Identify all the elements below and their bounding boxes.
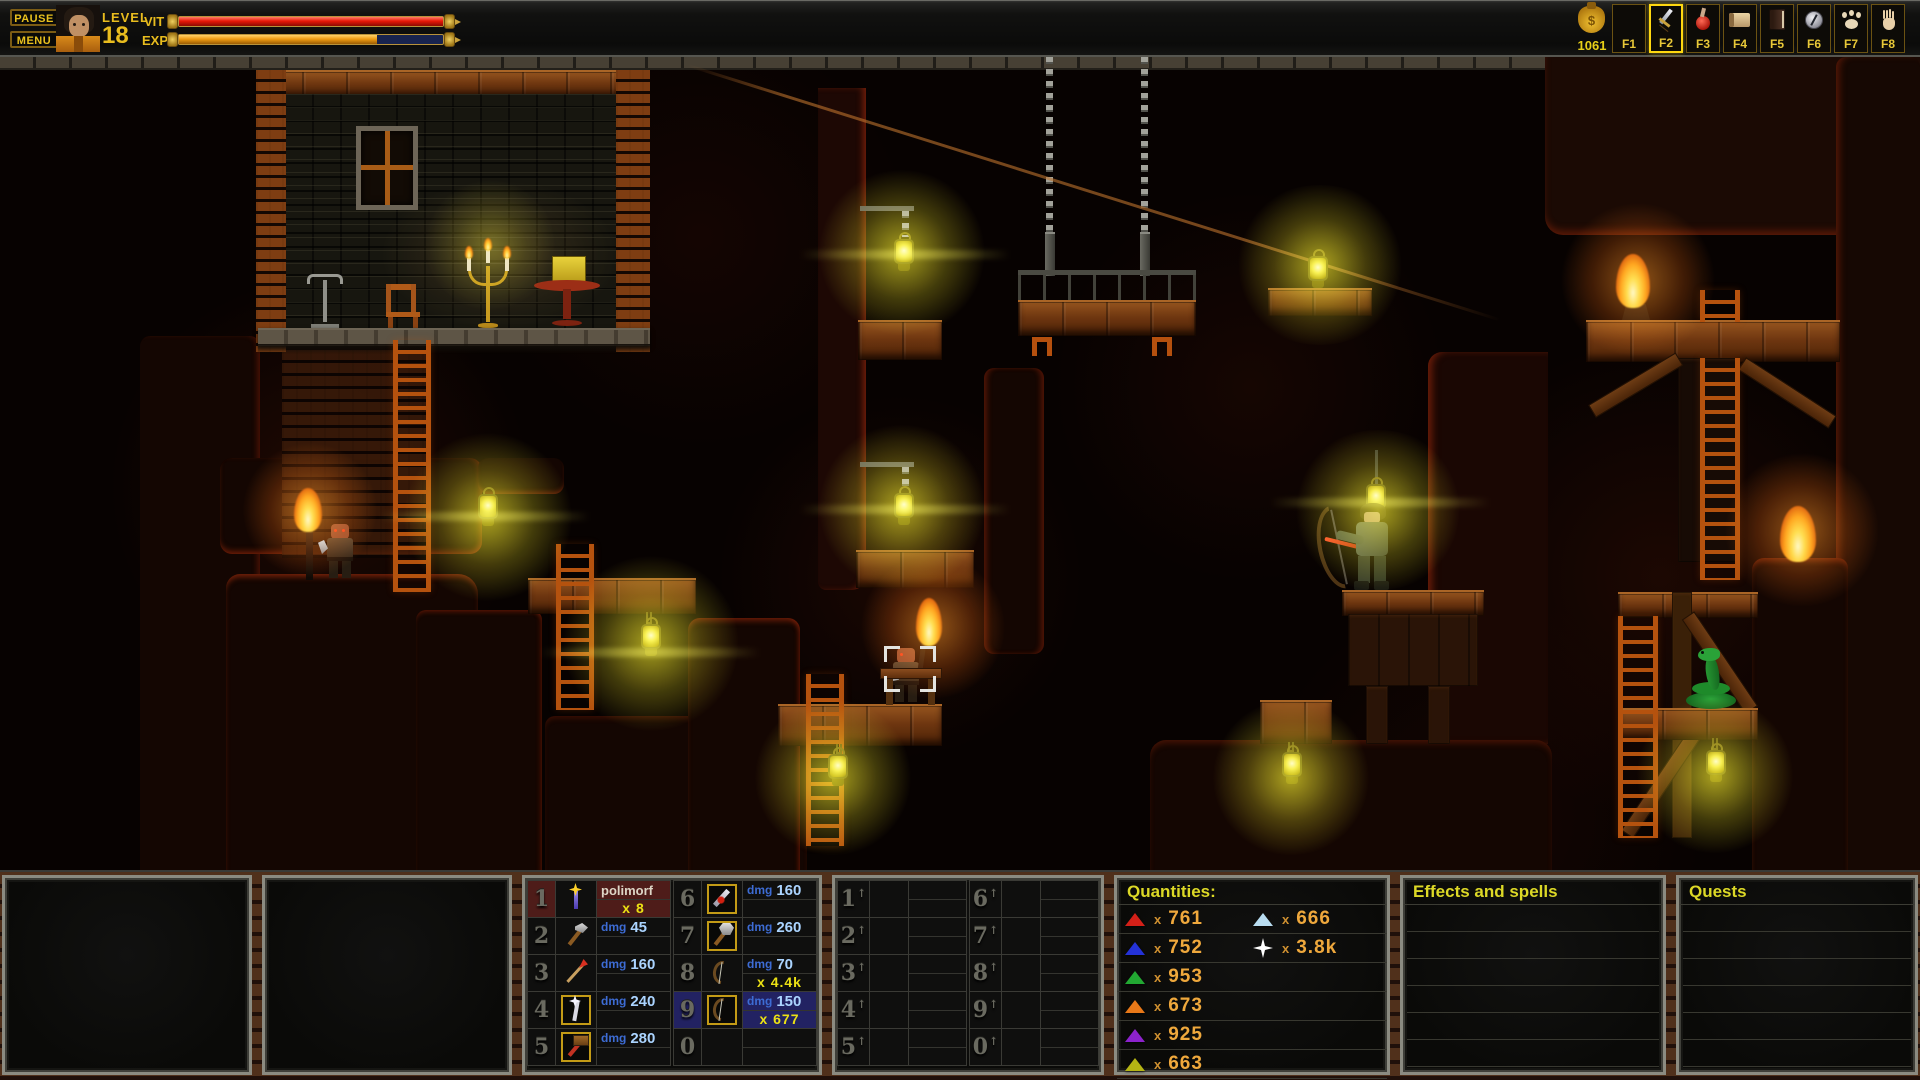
wood-platform: [528, 578, 696, 614]
lantern: [1282, 752, 1302, 784]
scene-decor: [1286, 777, 1298, 784]
slot-values: [1041, 881, 1098, 917]
quantity-row: x752x3.8k: [1117, 934, 1387, 963]
scene-decor: [342, 561, 351, 578]
compass-icon: [1801, 7, 1827, 33]
chair: [386, 284, 420, 328]
damage-label: dmg: [601, 920, 626, 934]
scene-decor: x3.8k: [1253, 937, 1381, 959]
fkey-label: F6: [1798, 37, 1830, 51]
slot-icon-cell: [702, 881, 743, 917]
multiplier-label: x: [1282, 941, 1289, 956]
dagger-icon: [709, 886, 735, 912]
shift-hotbar-slot-9[interactable]: 9↑: [970, 992, 1098, 1028]
ammo-count: x 677: [759, 1011, 799, 1027]
slot-values: dmg260: [743, 918, 816, 954]
scene-decor: [743, 1029, 816, 1048]
hotbar-slot-3[interactable]: 3dmg160: [528, 955, 670, 991]
slot-key: 7↑: [970, 918, 1002, 954]
scene-decor: [307, 274, 343, 284]
fkey-slot-f8[interactable]: F8: [1871, 4, 1905, 53]
scene-decor: [503, 246, 511, 259]
hotbar-slot-2[interactable]: 2dmg45: [528, 918, 670, 954]
quests-panel: Quests: [1676, 875, 1918, 1075]
scene-decor: [597, 1048, 670, 1064]
slot-values: dmg160: [597, 955, 670, 991]
slot-key: 0↑: [970, 1029, 1002, 1065]
ladder: [393, 340, 431, 592]
scene-decor: [1282, 752, 1302, 777]
pause-button[interactable]: PAUSE: [10, 9, 58, 26]
scene-decor: [1348, 614, 1478, 686]
scene-decor: [920, 676, 936, 692]
ammo-count: x 4.4k: [757, 974, 802, 990]
slot-key: 9↑: [970, 992, 1002, 1028]
weapons-hotbar-panel: 1polimorfx 82dmg453dmg1604dmg2405dmg2806…: [522, 875, 822, 1075]
slot-values: dmg150x 677: [743, 992, 816, 1028]
fkey-label: F1: [1613, 37, 1645, 51]
fkey-label: F4: [1724, 37, 1756, 51]
building-pillar: [616, 70, 650, 352]
bottom-hud-bar: 1polimorfx 82dmg453dmg1604dmg2405dmg2806…: [0, 870, 1920, 1080]
shift-hotbar-slot-7[interactable]: 7↑: [970, 918, 1098, 954]
effects-title: Effects and spells: [1403, 878, 1663, 905]
shift-key-digit: 6: [973, 886, 988, 912]
scene-decor: dmg160: [743, 881, 816, 900]
scene-decor: [465, 246, 473, 259]
scene-decor: x 8: [597, 900, 670, 916]
scene-decor: [597, 1011, 670, 1027]
slot-icon-cell: [702, 955, 743, 991]
hand-icon: [1875, 7, 1901, 33]
multiplier-label: x: [1154, 912, 1161, 927]
wood-platform: [856, 550, 974, 588]
slot-key: 9: [674, 992, 702, 1028]
scene-decor: [1032, 337, 1052, 356]
scene-decor: [1041, 900, 1098, 916]
scene-decor: 6dmg1607dmg2608dmg70x 4.4k9dmg150x 6770: [674, 881, 816, 1066]
cave-rock: [1752, 558, 1848, 880]
scene-decor: [909, 1011, 966, 1027]
quantity-row: x663: [1117, 1050, 1387, 1079]
damage-label: dmg: [747, 920, 772, 934]
hotbar-slot-5[interactable]: 5dmg280: [528, 1029, 670, 1065]
shift-key-digit: 4: [841, 997, 856, 1023]
hotbar-slot-6[interactable]: 6dmg160: [674, 881, 816, 917]
damage-label: dmg: [601, 1031, 626, 1045]
equipped-frame: [561, 995, 591, 1025]
shift-key-digit: 1: [841, 886, 856, 912]
scene-decor: [1041, 1011, 1098, 1027]
cave-rock: [688, 618, 800, 880]
scene-decor: [828, 754, 848, 779]
spear-icon: [563, 960, 589, 986]
book-icon: [1764, 7, 1790, 33]
fkey-slot-f5[interactable]: F5: [1760, 4, 1794, 53]
slot-values: [1041, 992, 1098, 1028]
lantern: [1706, 750, 1726, 782]
equipped-frame: [707, 884, 737, 914]
scene-decor: [743, 937, 816, 953]
scene-decor: [1374, 581, 1389, 590]
scene-decor: [467, 258, 471, 271]
arrow-pile-icon: [1125, 1000, 1145, 1013]
vitality-fill: [179, 17, 443, 26]
shift-marker: ↑: [857, 998, 866, 1011]
scene-decor: [505, 258, 509, 271]
slot-icon-cell: [702, 992, 743, 1028]
slot-values: dmg240: [597, 992, 670, 1028]
building-pillar: [256, 70, 286, 352]
scene-decor: [540, 648, 760, 657]
shift-hotbar-slot-0[interactable]: 0↑: [970, 1029, 1098, 1065]
multiplier-label: x: [1154, 941, 1161, 956]
slot-values: [909, 992, 966, 1028]
scene-decor: 1↑2↑3↑4↑5↑6↑7↑8↑9↑0↑: [835, 878, 1101, 1069]
arrow-pile-icon: [1125, 971, 1145, 984]
shift-marker: ↑: [989, 924, 998, 937]
effects-panel: Effects and spells: [1400, 875, 1666, 1075]
wood-platform: [778, 704, 942, 746]
lantern: [1308, 256, 1328, 288]
shift-key-digit: 7: [973, 923, 988, 949]
scene-decor: [909, 974, 966, 990]
equipped-frame: [561, 1032, 591, 1062]
scene-decor: [258, 344, 650, 354]
scene-decor: [909, 918, 966, 937]
shift-hotbar-slot-4[interactable]: 4↑: [838, 992, 966, 1028]
top-hud-bar: PAUSE MENU LEVEL 18 VIT EXP $ 1061 F1F2F…: [0, 0, 1920, 57]
scene-decor: 6↑7↑8↑9↑0↑: [970, 881, 1098, 1066]
scene-decor: [334, 529, 337, 532]
shift-hotbar-slot-1[interactable]: 1↑: [838, 881, 966, 917]
scene-decor: [484, 238, 492, 251]
damage-value: 240: [630, 993, 655, 1010]
quantity-count: 953: [1168, 966, 1203, 988]
arrow-pile-icon: [1253, 913, 1273, 926]
slot-key: 3: [528, 955, 556, 991]
platform-chain: [1046, 57, 1053, 234]
shift-hotbar-slot-8[interactable]: 8↑: [970, 955, 1098, 991]
scene-decor: [444, 14, 455, 29]
shift-marker: ↑: [857, 1035, 866, 1048]
fkey-slot-f6[interactable]: F6: [1797, 4, 1831, 53]
fkey-label: F5: [1761, 37, 1793, 51]
hotbar-slot-8[interactable]: 8dmg70x 4.4k: [674, 955, 816, 991]
inventory-panel-right: [262, 875, 512, 1075]
fkey-label: F8: [1872, 37, 1904, 51]
slot-values: dmg280: [597, 1029, 670, 1065]
scene-decor: [1308, 256, 1328, 281]
slot-key: 5: [528, 1029, 556, 1065]
shift-marker: ↑: [989, 998, 998, 1011]
shift-key-digit: 9: [973, 997, 988, 1023]
slot-values: dmg160: [743, 881, 816, 917]
scene-decor: [1041, 1029, 1098, 1048]
scene-decor: [329, 561, 338, 578]
shift-marker: ↑: [989, 1035, 998, 1048]
hanging-platform-deck: [1018, 300, 1196, 336]
wood-platform: [858, 320, 942, 360]
hotbar-slot-0[interactable]: 0: [674, 1029, 816, 1065]
scene-decor: [1041, 992, 1098, 1011]
shift-marker: ↑: [857, 961, 866, 974]
scene-decor: 1polimorfx 82dmg453dmg1604dmg2405dmg280: [528, 881, 670, 1066]
slot-key: 7: [674, 918, 702, 954]
slot-values: polimorfx 8: [597, 881, 670, 917]
scene-decor: dmg45: [597, 918, 670, 937]
slot-values: dmg45: [597, 918, 670, 954]
hotbar-slot-7[interactable]: 7dmg260: [674, 918, 816, 954]
slot-icon-cell: [870, 955, 909, 991]
slot-icon-cell: [702, 1029, 743, 1065]
shift-marker: ↑: [857, 887, 866, 900]
shift-hotbar-slot-5[interactable]: 5↑: [838, 1029, 966, 1065]
slot-icon-cell: [1002, 1029, 1041, 1065]
slot-icon-cell: [1002, 881, 1041, 917]
scene-decor: [1041, 974, 1098, 990]
slot-values: dmg70x 4.4k: [743, 955, 816, 991]
scene-decor: [1706, 750, 1726, 775]
damage-label: dmg: [601, 994, 626, 1008]
arrow-pile-icon: [1125, 1058, 1145, 1071]
scene-decor: [884, 676, 900, 692]
scene-decor: dmg160: [597, 955, 670, 974]
equipped-frame: [707, 995, 737, 1025]
slot-icon-cell: [556, 955, 597, 991]
scene-decor: [1354, 581, 1369, 590]
ladder: [556, 544, 594, 710]
arrow-pile-icon: [1125, 913, 1145, 926]
scene-decor: polimorf: [597, 881, 670, 900]
slot-icon-cell: [870, 881, 909, 917]
slot-key: 6↑: [970, 881, 1002, 917]
scene-decor: [327, 538, 353, 559]
scene-decor: dmg150: [743, 992, 816, 1011]
multiplier-label: x: [1154, 999, 1161, 1014]
shift-key-digit: 3: [841, 960, 856, 986]
slot-values: [743, 1029, 816, 1065]
fkey-slot-f1[interactable]: F1: [1612, 4, 1646, 53]
slot-icon-cell: [1002, 918, 1041, 954]
damage-value: 45: [630, 919, 647, 936]
scene-decor: [597, 974, 670, 990]
bow-icon: [709, 960, 735, 986]
multiplier-label: x: [1154, 1028, 1161, 1043]
slot-values: [1041, 955, 1098, 991]
candelabra: [466, 236, 510, 328]
scene-decor: [909, 1029, 966, 1048]
shift-marker: ↑: [989, 887, 998, 900]
scene-decor: [1374, 556, 1386, 583]
fkey-label: F2: [1651, 36, 1681, 50]
slot-values: [1041, 1029, 1098, 1065]
quantity-count: 752: [1168, 937, 1203, 959]
scene-decor: dmg70: [743, 955, 816, 974]
quantity-count: 666: [1296, 908, 1331, 930]
damage-label: dmg: [747, 994, 772, 1008]
scene-decor: [1366, 686, 1388, 744]
scene-decor: [909, 900, 966, 916]
slot-icon-cell: [556, 992, 597, 1028]
scene-decor: [832, 779, 844, 786]
experience-bar: [178, 34, 444, 45]
hotbar-slot-4[interactable]: 4dmg240: [528, 992, 670, 1028]
fkey-slot-f2[interactable]: F2: [1649, 4, 1683, 53]
scene-decor: [743, 1048, 816, 1064]
scene-decor: [411, 284, 416, 314]
fkey-slot-f4[interactable]: F4: [1723, 4, 1757, 53]
multiplier-label: x: [1282, 912, 1289, 927]
hammer-icon: [563, 1034, 589, 1060]
scene-decor: [898, 518, 910, 525]
fkey-slot-f7[interactable]: F7: [1834, 4, 1868, 53]
orc-enemy-sprite: [320, 522, 360, 580]
scene-decor: [1270, 498, 1490, 507]
shift-hotbar-panel: 1↑2↑3↑4↑5↑6↑7↑8↑9↑0↑: [832, 875, 1104, 1075]
item-name: polimorf: [601, 883, 653, 898]
scene-decor: [909, 881, 966, 900]
damage-label: dmg: [601, 957, 626, 971]
shift-hotbar-slot-2[interactable]: 2↑: [838, 918, 966, 954]
quantity-row: x673: [1117, 992, 1387, 1021]
scene-decor: [1312, 281, 1324, 288]
scene-decor: [1041, 918, 1098, 937]
scene-decor: x953: [1125, 966, 1253, 988]
quantity-row: x925: [1117, 1021, 1387, 1050]
wood-platform: [1342, 590, 1484, 616]
scene-decor: [552, 320, 582, 326]
building-window: [356, 126, 418, 210]
scene-decor: [1428, 686, 1450, 744]
magic-star-icon: [1253, 938, 1273, 958]
gold-bag-icon: $: [1578, 6, 1605, 33]
scene-decor: x 677: [743, 1011, 816, 1027]
ammo-count: x 8: [622, 900, 644, 916]
scene-decor: dmg260: [743, 918, 816, 937]
slot-key: 2: [528, 918, 556, 954]
shift-hotbar-slot-6[interactable]: 6↑: [970, 881, 1098, 917]
slot-values: [1041, 918, 1098, 954]
scene-decor: [82, 23, 85, 26]
game-window: PAUSE MENU LEVEL 18 VIT EXP $ 1061 F1F2F…: [0, 0, 1920, 1080]
weapon-stand: [303, 274, 347, 328]
scepter-icon: [563, 997, 589, 1023]
shift-hotbar-slot-3[interactable]: 3↑: [838, 955, 966, 991]
snake-enemy-sprite: [1686, 648, 1736, 710]
quests-empty-rows: [1683, 905, 1911, 1067]
wood-platform: [1268, 288, 1372, 316]
scene-decor: [73, 23, 76, 26]
scene-decor: [1710, 775, 1722, 782]
scene-decor: [388, 317, 393, 328]
damage-value: 160: [630, 956, 655, 973]
quantities-title: Quantities:: [1117, 878, 1387, 905]
scene-decor: x761: [1125, 908, 1253, 930]
scene-decor: dmg240: [597, 992, 670, 1011]
menu-button[interactable]: MENU: [10, 31, 58, 48]
cave-rock: [416, 610, 542, 880]
quantity-count: 761: [1168, 908, 1203, 930]
shift-key-digit: 5: [841, 1034, 856, 1060]
paw-icon: [1838, 7, 1864, 33]
scene-decor: [1041, 881, 1098, 900]
scene-decor: [342, 529, 345, 532]
scene-decor: [1041, 955, 1098, 974]
scroll-icon: [1727, 7, 1753, 33]
scene-decor: [898, 264, 910, 271]
bow-icon: [709, 997, 735, 1023]
scene-decor: [909, 955, 966, 974]
scene-decor: [167, 14, 178, 29]
scene-decor: [641, 624, 661, 649]
scene-decor: [597, 937, 670, 953]
scene-decor: [884, 646, 900, 662]
scene-decor: x666: [1253, 908, 1381, 930]
slot-key: 6: [674, 881, 702, 917]
hotbar-slot-1[interactable]: 1polimorfx 8: [528, 881, 670, 917]
cave-rock: [1150, 740, 1552, 880]
hotbar-slot-9[interactable]: 9dmg150x 677: [674, 992, 816, 1028]
slot-key: 1↑: [838, 881, 870, 917]
scene-decor: [1358, 556, 1370, 583]
scene-decor: [323, 280, 327, 322]
ladder: [1618, 616, 1658, 838]
scene-decor: x761x666x752x3.8kx953x673x925x663: [1117, 905, 1387, 1079]
function-key-slots: F1F2F3F4F5F6F7F8: [1612, 4, 1905, 53]
scene-decor: x673: [1125, 995, 1253, 1017]
cave-rock: [1836, 57, 1920, 880]
scene-decor: [468, 270, 508, 286]
inventory-panel-left: [2, 875, 252, 1075]
shift-key-digit: 2: [841, 923, 856, 949]
scene-decor: [413, 317, 418, 328]
quests-title: Quests: [1679, 878, 1915, 905]
scene-decor: [1041, 1048, 1098, 1064]
slot-key: 0: [674, 1029, 702, 1065]
torch-post: [306, 526, 313, 580]
scene-decor: [444, 32, 455, 47]
scene-decor: [743, 900, 816, 916]
fkey-label: F3: [1687, 37, 1719, 51]
shift-marker: ↑: [857, 924, 866, 937]
scene-decor: [920, 646, 936, 662]
quantity-count: 663: [1168, 1053, 1203, 1075]
target-brackets: [884, 646, 936, 692]
fkey-slot-f3[interactable]: F3: [1686, 4, 1720, 53]
quantity-count: 673: [1168, 995, 1203, 1017]
slot-key: 3↑: [838, 955, 870, 991]
quantity-row: x761x666: [1117, 905, 1387, 934]
ladder: [1700, 290, 1740, 322]
wood-platform: [1260, 700, 1332, 744]
slot-key: 4: [528, 992, 556, 1028]
multiplier-label: x: [1154, 1057, 1161, 1072]
scene-decor: [167, 32, 178, 47]
arrow-pile-icon: [1125, 1029, 1145, 1042]
axe-icon: [563, 923, 589, 949]
slot-icon-cell: [870, 1029, 909, 1065]
polymorph-wand-icon: [563, 886, 589, 912]
shift-marker: ↑: [989, 961, 998, 974]
scene-decor: [1018, 275, 1196, 301]
experience-fill: [179, 35, 377, 44]
slot-icon-cell: [556, 881, 597, 917]
character-portrait[interactable]: [56, 5, 100, 52]
damage-value: 160: [776, 882, 801, 899]
scene-decor: [800, 505, 1010, 514]
slot-key: 2↑: [838, 918, 870, 954]
